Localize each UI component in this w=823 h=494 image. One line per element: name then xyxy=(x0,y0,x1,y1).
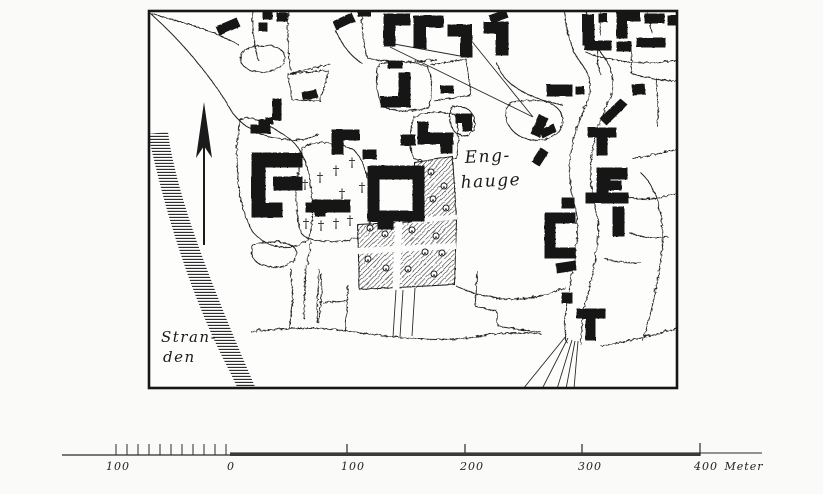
grave-cross-icon: † xyxy=(349,156,356,171)
building xyxy=(546,84,572,96)
grave-cross-icon: † xyxy=(302,178,309,193)
building xyxy=(273,176,302,190)
building xyxy=(258,22,267,31)
grave-cross-icon: † xyxy=(359,181,366,196)
map-page: † † † † † † † † † † Eng- hauge Stran- de… xyxy=(0,0,823,494)
tree-icon xyxy=(409,227,415,233)
building xyxy=(585,192,628,203)
tree-icon xyxy=(367,225,373,231)
grave-cross-icon: † xyxy=(317,171,324,186)
building xyxy=(575,86,584,94)
scale-left-ticks xyxy=(116,444,226,455)
building xyxy=(561,292,572,303)
tree-icon xyxy=(439,250,445,256)
grave-cross-icon: † xyxy=(333,164,340,179)
building xyxy=(440,85,453,93)
tree-icon xyxy=(382,231,388,237)
scale-main-bar xyxy=(230,452,700,456)
tree-icon xyxy=(430,196,436,202)
grave-cross-icon: † xyxy=(333,217,340,232)
scale-label: 400 xyxy=(693,460,718,473)
building xyxy=(667,15,677,25)
scale-label: 0 xyxy=(227,460,235,473)
building xyxy=(377,221,393,229)
building xyxy=(400,134,415,145)
building xyxy=(636,37,665,47)
tree-icon xyxy=(433,233,439,239)
building xyxy=(272,98,281,120)
scale-unit-label: Meter xyxy=(724,460,764,473)
building xyxy=(387,60,402,68)
scale-label: 100 xyxy=(106,460,130,473)
label-stranden: den xyxy=(163,348,196,366)
tree-icon xyxy=(405,266,411,272)
grave-cross-icon: † xyxy=(303,217,310,232)
building xyxy=(584,40,611,50)
label-enghauge: hauge xyxy=(460,170,521,193)
tree-icon xyxy=(383,265,389,271)
tree-icon xyxy=(441,183,447,189)
building xyxy=(631,83,645,95)
building xyxy=(362,149,376,159)
town-map: † † † † † † † † † † Eng- hauge Stran- de… xyxy=(0,0,823,494)
label-stranden: Stran- xyxy=(161,328,217,346)
building xyxy=(440,144,452,153)
tree-icon xyxy=(428,169,434,175)
tree-icon xyxy=(431,271,437,277)
grave-cross-icon: † xyxy=(339,187,346,202)
tree-icon xyxy=(443,205,449,211)
building xyxy=(561,197,574,208)
scale-label: 200 xyxy=(459,460,484,473)
scale-label: 300 xyxy=(578,460,602,473)
building xyxy=(612,206,624,236)
scale-bar: 100 0 100 200 300 400 Meter xyxy=(62,443,763,473)
building xyxy=(598,13,607,22)
tree-icon xyxy=(422,249,428,255)
building xyxy=(644,13,664,23)
grave-cross-icon: † xyxy=(347,214,354,229)
building xyxy=(251,202,282,217)
label-enghauge: Eng- xyxy=(463,146,511,168)
grave-cross-icon: † xyxy=(318,219,325,234)
building xyxy=(616,41,631,51)
building xyxy=(276,12,287,21)
tree-icon xyxy=(365,256,371,262)
scale-label: 100 xyxy=(341,460,365,473)
